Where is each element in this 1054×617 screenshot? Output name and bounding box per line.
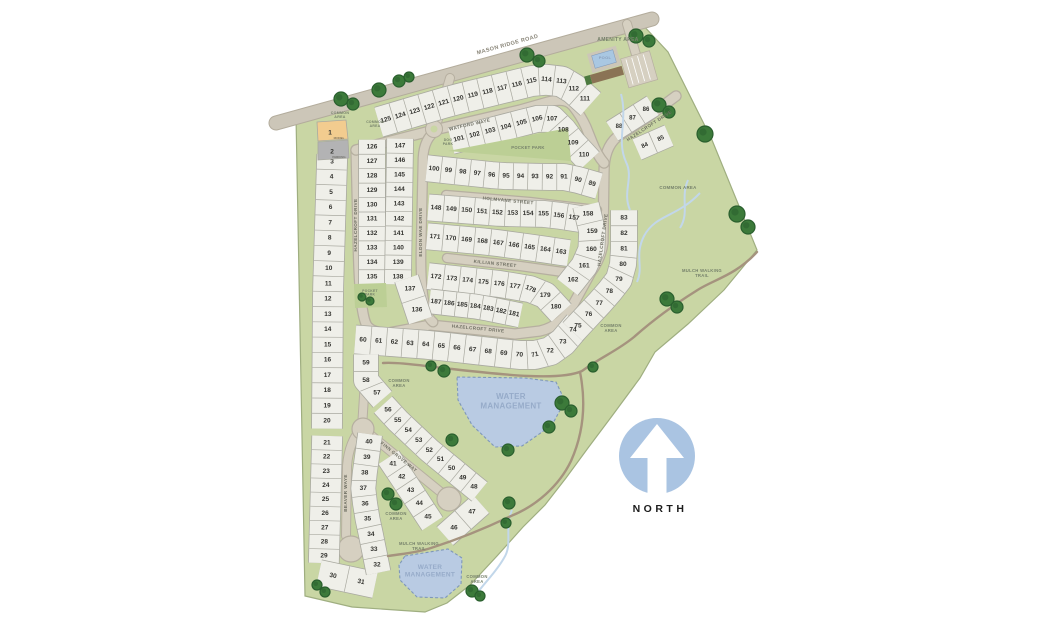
lot-number: 139: [393, 259, 404, 266]
lot-number: 129: [367, 187, 378, 194]
lot-number: 66: [453, 344, 461, 352]
lot-number: 162: [568, 277, 579, 284]
entrance-island-green: [431, 126, 438, 133]
lot-number: 95: [502, 173, 510, 180]
area-label: COMMONAREA: [466, 574, 487, 584]
lot-number: 65: [437, 342, 445, 350]
lot-number: 63: [406, 340, 414, 348]
lot-number: 11: [325, 280, 332, 287]
lot-number: 155: [538, 210, 549, 217]
lot-number: 135: [367, 274, 378, 281]
lot-number: 15: [324, 341, 332, 348]
north-label: NORTH: [633, 503, 688, 515]
tree-icon: [645, 37, 650, 42]
lot-number: 146: [394, 157, 405, 164]
lot-number: 20: [323, 418, 331, 425]
lot-number: 7: [328, 219, 332, 226]
lot-number: 81: [620, 246, 628, 253]
lot-number: 19: [324, 402, 332, 409]
lot-number: 144: [394, 186, 405, 193]
lot-number: 64: [422, 341, 430, 349]
lot-number: 28: [321, 538, 329, 545]
lot-number: 48: [470, 484, 478, 491]
lot-number: 111: [580, 96, 591, 103]
lot-number: 171: [429, 233, 441, 241]
lot-number: 180: [551, 304, 562, 311]
lot-number: 16: [324, 357, 332, 364]
lot-number: 29: [320, 553, 328, 560]
lot-number: 67: [469, 346, 477, 354]
lot-number: 151: [476, 208, 488, 216]
lot-number: 23: [323, 468, 331, 475]
lot-number: 96: [488, 171, 496, 179]
lot-number: 154: [523, 210, 534, 217]
lot-number: 9: [327, 250, 331, 257]
lot-number: 57: [373, 390, 381, 397]
lot-number: 43: [407, 487, 415, 494]
area-label: AMENITY AREA: [597, 37, 638, 43]
lot-number: 176: [493, 280, 505, 288]
lot-number: 51: [437, 456, 445, 463]
lot-number: 1: [328, 130, 332, 137]
north-arrow: NORTH: [619, 418, 695, 515]
lot-number: 97: [473, 170, 481, 178]
lot-number: 132: [367, 230, 378, 237]
tree-icon: [314, 582, 319, 587]
lot-number: 44: [416, 500, 424, 507]
tree-icon: [428, 363, 433, 368]
lot-number: 184: [469, 302, 481, 310]
lot-number: 60: [359, 336, 367, 344]
lot-number: 187: [430, 298, 442, 306]
lot-number: 169: [461, 236, 473, 244]
lot-number: 77: [596, 300, 604, 307]
lot-number: 126: [367, 144, 378, 151]
tree-icon: [374, 85, 380, 91]
site-plan-canvas: 1251241231221211201191181171161151141131…: [0, 0, 1054, 617]
lot-number: 55: [394, 417, 402, 424]
tree-icon: [503, 520, 508, 525]
tree-icon: [477, 593, 482, 598]
lot-number: 61: [375, 337, 383, 345]
street-name-label: HAZELCROFT DRIVE: [353, 199, 358, 252]
lot-use-label: MODEL: [334, 136, 345, 140]
lot-number: 137: [405, 286, 416, 293]
tree-icon: [654, 100, 660, 106]
tree-icon: [673, 303, 678, 308]
lot-number: 35: [364, 516, 372, 523]
lot-number: 10: [325, 265, 333, 272]
tree-icon: [349, 100, 354, 105]
lot-number: 70: [515, 351, 523, 359]
lot-number: 6: [329, 204, 333, 211]
lot-number: 40: [365, 439, 373, 446]
lot-number: 158: [583, 211, 594, 218]
tree-icon: [557, 398, 563, 404]
lot-number: 108: [558, 127, 569, 134]
lot-number: 45: [424, 514, 432, 521]
lot-number: 53: [415, 437, 423, 444]
lot-number: 86: [643, 107, 650, 113]
lot-number: 112: [569, 85, 580, 92]
lot-number: 173: [446, 275, 458, 283]
lot-number: 114: [541, 76, 553, 84]
lot-number: 141: [393, 230, 404, 237]
tree-icon: [504, 446, 509, 451]
tree-icon: [395, 77, 400, 82]
lot-number: 109: [568, 140, 579, 147]
lot-number: 153: [507, 210, 518, 217]
lot-number: 52: [426, 447, 434, 454]
tree-icon: [535, 57, 540, 62]
lot-number: 145: [394, 172, 405, 179]
tree-icon: [384, 490, 389, 495]
lot-use-label: PARKING: [332, 155, 346, 159]
lot-number: 36: [361, 500, 369, 507]
area-label: COMMON AREA: [659, 185, 697, 190]
cul-de-sac-bulb: [437, 487, 461, 511]
lot-number: 33: [370, 546, 378, 553]
tree-icon: [367, 298, 371, 302]
special-lots-layer: 1MODEL2PARKING: [317, 120, 349, 160]
street-name-label: ELDON WAE DRIVE: [418, 207, 423, 256]
lot-number: 100: [428, 165, 440, 173]
lot-number: 185: [456, 301, 468, 309]
lot-number: 140: [393, 244, 404, 251]
lot-number: 69: [500, 350, 508, 358]
lot-number: 150: [461, 206, 473, 214]
lot-number: 93: [531, 173, 539, 180]
lot-number: 21: [323, 440, 331, 447]
lot-number: 26: [322, 510, 330, 517]
tree-icon: [567, 407, 572, 412]
tree-icon: [590, 364, 595, 369]
lot-number: 152: [492, 209, 504, 217]
tree-icon: [392, 500, 397, 505]
lot-number: 136: [412, 307, 423, 314]
lot-number: 94: [517, 173, 525, 180]
lot-number: 133: [367, 245, 378, 252]
lot-number: 13: [324, 311, 332, 318]
tree-icon: [662, 294, 668, 300]
lot-number: 128: [367, 172, 378, 179]
lot-number: 92: [546, 174, 554, 181]
lot-number: 41: [389, 461, 397, 468]
lot-number: 148: [430, 204, 442, 212]
lot-number: 131: [367, 216, 378, 223]
lot-number: 14: [324, 326, 332, 333]
lot-number: 25: [322, 496, 330, 503]
lot-number: 42: [398, 474, 406, 481]
lot-number: 73: [559, 339, 567, 346]
lot-number: 168: [477, 237, 489, 245]
lot-number: 37: [360, 485, 368, 492]
tree-icon: [743, 222, 749, 228]
lot-number: 175: [478, 278, 490, 286]
tree-icon: [505, 499, 510, 504]
lot-number: 82: [620, 230, 628, 237]
lot-number: 166: [508, 241, 520, 249]
lot-number: 17: [324, 372, 332, 379]
tree-icon: [448, 436, 453, 441]
lot-number: 49: [459, 474, 467, 481]
street-name-label: BEAVER WAYE: [343, 474, 348, 512]
lot-number: 56: [384, 407, 392, 414]
tree-icon: [545, 423, 550, 428]
area-label: POCKET PARK: [511, 145, 544, 150]
lot-number: 12: [324, 296, 332, 303]
lot-number: 27: [321, 524, 329, 531]
lot-number: 167: [492, 239, 504, 247]
lot-number: 179: [540, 292, 551, 299]
tree-icon: [406, 74, 411, 79]
lot-number: 161: [579, 262, 590, 269]
lot-number: 68: [484, 348, 492, 356]
lot-number: 72: [547, 348, 555, 355]
lot-number: 58: [362, 377, 370, 384]
lot-number: 147: [395, 143, 406, 150]
lot-number: 98: [459, 168, 467, 176]
lot-number: 134: [367, 259, 378, 266]
tree-icon: [440, 367, 445, 372]
area-label: POOL: [599, 55, 612, 60]
lot-number: 110: [579, 152, 590, 159]
tree-icon: [699, 128, 706, 135]
lot-number: 91: [560, 174, 568, 181]
lot-number: 24: [322, 482, 330, 489]
lot-number: 83: [620, 215, 628, 222]
lot-number: 76: [585, 311, 593, 318]
lot-number: 38: [361, 469, 369, 476]
lot-number: 80: [619, 261, 627, 268]
tree-icon: [522, 50, 528, 56]
lot-number: 159: [587, 228, 598, 235]
lot-number: 130: [367, 201, 378, 208]
area-label: DOGPARK: [443, 138, 454, 146]
lot-number: 170: [445, 234, 457, 242]
tree-icon: [322, 589, 327, 594]
lot-number: 34: [367, 531, 375, 538]
lot-number: 5: [329, 189, 333, 196]
lot-number: 46: [450, 525, 458, 532]
lot-number: 62: [390, 339, 398, 347]
lot-number: 107: [547, 115, 558, 122]
lot-number: 138: [393, 274, 404, 281]
tree-icon: [731, 208, 738, 215]
tree-icon: [336, 94, 342, 100]
lot-number: 54: [405, 427, 413, 434]
lot-number: 149: [446, 205, 458, 213]
lot-number: 79: [615, 276, 623, 283]
lot-number: 32: [373, 562, 381, 569]
lot-number: 47: [468, 509, 476, 516]
lot-number: 127: [367, 158, 378, 165]
lot-number: 172: [430, 273, 442, 281]
lot-number: 99: [444, 167, 452, 175]
lot-number: 75: [574, 323, 582, 330]
lot-number: 39: [363, 454, 371, 461]
lot-number: 113: [556, 77, 568, 85]
lot-number: 78: [606, 288, 614, 295]
lot-number: 22: [323, 454, 331, 461]
lot-number: 8: [328, 235, 332, 242]
lot-number: 50: [448, 465, 456, 472]
lot-number: 142: [393, 215, 404, 222]
lot-number: 186: [443, 299, 455, 307]
lot-number: 87: [629, 116, 636, 122]
tree-icon: [468, 587, 473, 592]
tree-icon: [359, 294, 363, 298]
lot-number: 4: [330, 174, 334, 181]
lot-number: 160: [586, 246, 597, 253]
lot-number: 143: [394, 201, 405, 208]
lot-number: 174: [462, 276, 474, 284]
lot-number: 59: [362, 360, 370, 367]
site-map: 1251241231221211201191181171161151141131…: [0, 0, 1054, 617]
lot-number: 18: [324, 387, 332, 394]
